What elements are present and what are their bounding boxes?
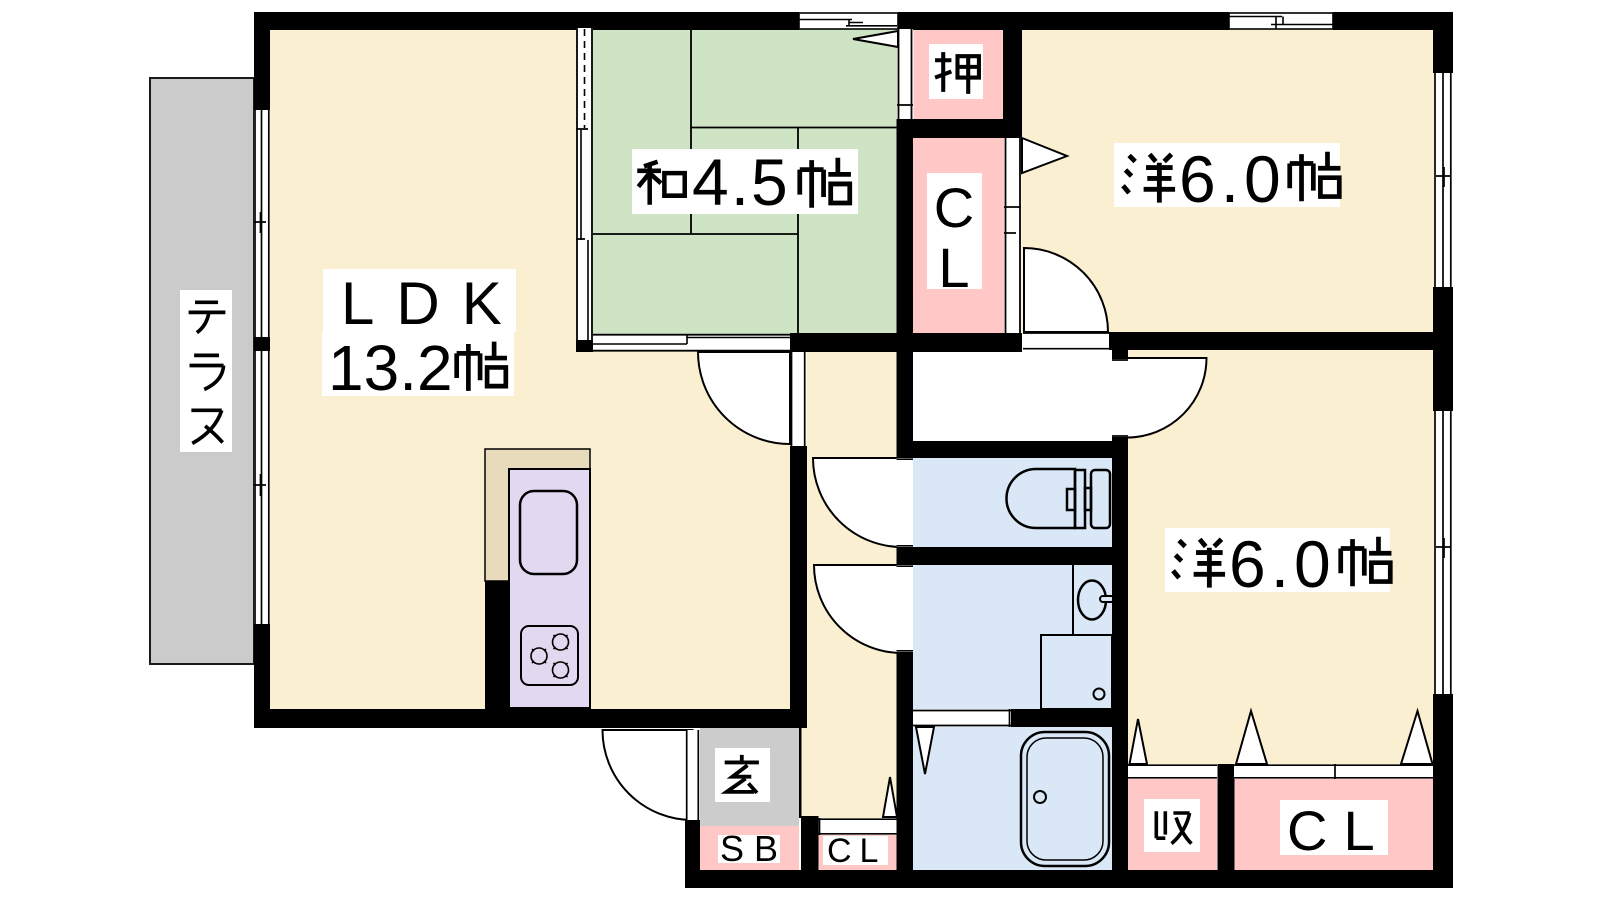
svg-text:6.0: 6.0 (1229, 527, 1336, 601)
svg-text:4.5: 4.5 (692, 145, 790, 219)
svg-text:C: C (934, 176, 974, 239)
svg-text:LDK: LDK (341, 270, 524, 337)
svg-text:6.0: 6.0 (1179, 142, 1286, 216)
svg-text:CL: CL (1287, 799, 1391, 862)
svg-text:CL: CL (827, 832, 886, 870)
svg-text:13.2: 13.2 (328, 332, 453, 404)
svg-text:L: L (938, 236, 969, 299)
svg-text:SB: SB (720, 828, 788, 869)
